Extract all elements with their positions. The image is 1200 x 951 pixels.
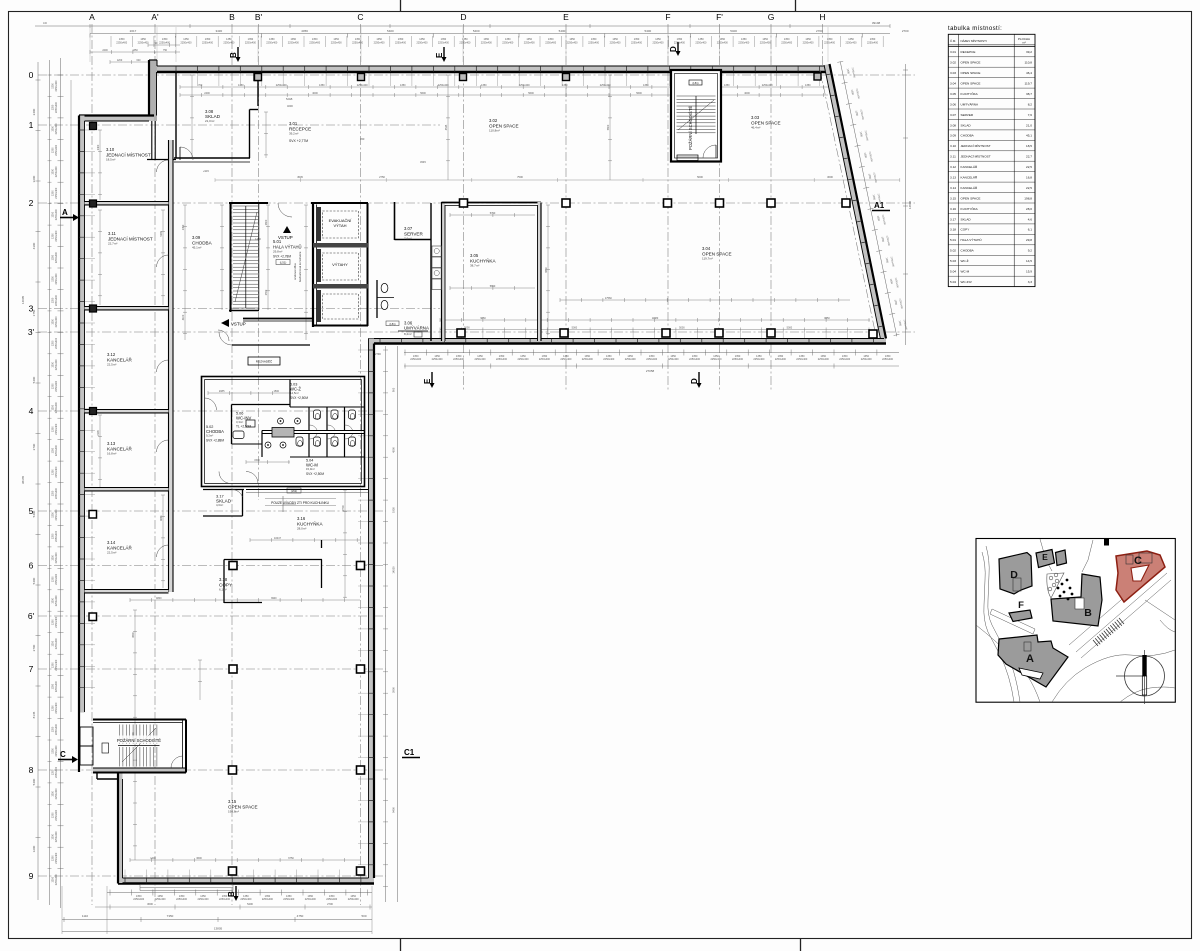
svg-text:5.04: 5.04 <box>950 270 956 274</box>
svg-text:22,5: 22,5 <box>1026 186 1032 190</box>
svg-text:VÝTAHY: VÝTAHY <box>332 262 348 267</box>
svg-text:2250x400: 2250x400 <box>668 358 680 361</box>
svg-text:905: 905 <box>392 387 396 392</box>
svg-text:3.16: 3.16 <box>950 207 956 211</box>
svg-text:22,7m²: 22,7m² <box>108 242 117 246</box>
svg-text:2250x400: 2250x400 <box>198 898 210 901</box>
svg-text:2250x400: 2250x400 <box>588 42 600 45</box>
svg-text:1350: 1350 <box>132 49 138 52</box>
svg-text:2250x400: 2250x400 <box>582 358 594 361</box>
svg-text:1110: 1110 <box>82 914 89 918</box>
svg-text:(L51): (L51) <box>389 322 395 326</box>
svg-text:2250x400: 2250x400 <box>818 358 830 361</box>
svg-text:2250x400: 2250x400 <box>803 42 815 45</box>
svg-text:45,1m²: 45,1m² <box>192 246 201 250</box>
svg-text:2400: 2400 <box>102 49 108 52</box>
svg-text:45,1: 45,1 <box>1026 134 1032 138</box>
svg-text:3.03: 3.03 <box>751 115 760 120</box>
svg-text:2250x400: 2250x400 <box>762 84 774 87</box>
svg-text:3.13: 3.13 <box>107 441 116 446</box>
svg-text:2250x400: 2250x400 <box>55 230 58 242</box>
svg-text:2250x400: 2250x400 <box>374 42 386 45</box>
svg-text:2250x400: 2250x400 <box>55 874 58 886</box>
svg-text:3.13: 3.13 <box>950 176 956 180</box>
svg-text:SERVER: SERVER <box>961 113 974 117</box>
svg-text:RECEPCE: RECEPCE <box>961 50 976 54</box>
svg-text:2250x400: 2250x400 <box>689 358 701 361</box>
svg-text:1350: 1350 <box>52 83 55 89</box>
svg-text:B: B <box>229 12 235 22</box>
svg-text:1350: 1350 <box>52 147 55 153</box>
svg-text:6,1: 6,1 <box>1028 228 1033 232</box>
svg-text:POŽÁRNÍ SCHODIŠTĚ: POŽÁRNÍ SCHODIŠTĚ <box>688 106 693 150</box>
svg-text:2250x400: 2250x400 <box>348 898 360 901</box>
svg-text:3.15: 3.15 <box>228 799 237 804</box>
svg-text:2250x400: 2250x400 <box>55 209 58 221</box>
svg-text:18,5m²: 18,5m² <box>106 158 115 162</box>
svg-text:1350: 1350 <box>805 84 811 87</box>
svg-text:110,8: 110,8 <box>1024 61 1032 65</box>
svg-text:1350: 1350 <box>52 211 55 217</box>
svg-text:4,6m²: 4,6m² <box>216 503 223 507</box>
svg-text:5.02: 5.02 <box>950 249 956 253</box>
svg-text:2250x400: 2250x400 <box>55 702 58 714</box>
svg-text:2250x400: 2250x400 <box>653 42 665 45</box>
svg-text:8,2m²: 8,2m² <box>404 332 412 336</box>
svg-text:2250x400: 2250x400 <box>695 42 707 45</box>
svg-text:1200: 1200 <box>117 59 123 62</box>
svg-text:3.01: 3.01 <box>289 121 298 126</box>
svg-text:2250x400: 2250x400 <box>155 898 167 901</box>
svg-text:3.05: 3.05 <box>950 92 956 96</box>
svg-text:46,4m²: 46,4m² <box>751 126 760 130</box>
svg-text:1350: 1350 <box>52 404 55 410</box>
svg-text:2700: 2700 <box>816 29 823 33</box>
svg-text:1350: 1350 <box>52 447 55 453</box>
svg-text:4056: 4056 <box>301 29 308 33</box>
svg-text:1350: 1350 <box>52 769 55 775</box>
svg-text:2250x400: 2250x400 <box>116 42 128 45</box>
svg-text:3.12: 3.12 <box>107 352 116 357</box>
svg-text:2250x400: 2250x400 <box>55 680 58 692</box>
svg-text:2250x400: 2250x400 <box>867 42 879 45</box>
svg-text:500: 500 <box>361 914 366 918</box>
svg-text:3.06: 3.06 <box>950 102 956 106</box>
svg-text:1350: 1350 <box>52 361 55 367</box>
svg-text:2250x400: 2250x400 <box>202 42 214 45</box>
svg-text:2250x400: 2250x400 <box>55 444 58 456</box>
svg-text:28,0m²: 28,0m² <box>297 527 306 531</box>
svg-text:3.09: 3.09 <box>950 134 956 138</box>
svg-text:2250x400: 2250x400 <box>55 273 58 285</box>
svg-text:2700: 2700 <box>902 29 909 33</box>
svg-text:4500: 4500 <box>392 447 396 453</box>
svg-text:7,6: 7,6 <box>1028 113 1033 117</box>
svg-text:2250x400: 2250x400 <box>55 766 58 778</box>
svg-text:2250x400: 2250x400 <box>625 358 637 361</box>
svg-text:3.03: 3.03 <box>950 71 956 75</box>
svg-text:5000: 5000 <box>787 326 793 329</box>
svg-text:2: 2 <box>29 198 34 208</box>
svg-text:3600: 3600 <box>196 857 202 860</box>
svg-text:1350: 1350 <box>52 469 55 475</box>
svg-text:7: 7 <box>29 664 34 674</box>
svg-text:2250x400: 2250x400 <box>55 723 58 735</box>
svg-text:2250x400: 2250x400 <box>846 42 858 45</box>
svg-text:4545: 4545 <box>420 160 426 164</box>
svg-text:5900: 5900 <box>392 687 396 693</box>
svg-text:2250x400: 2250x400 <box>882 358 894 361</box>
svg-text:H: H <box>819 12 825 22</box>
svg-text:2400: 2400 <box>97 144 100 150</box>
svg-text:2250x400: 2250x400 <box>55 101 58 113</box>
svg-text:2600: 2600 <box>265 219 268 225</box>
svg-text:2250x400: 2250x400 <box>181 42 193 45</box>
svg-text:G: G <box>768 12 775 22</box>
svg-text:WC-INV: WC-INV <box>961 280 973 284</box>
svg-text:2250x400: 2250x400 <box>738 42 750 45</box>
svg-text:1350: 1350 <box>52 640 55 646</box>
svg-text:3.14: 3.14 <box>107 540 116 545</box>
svg-text:29,8: 29,8 <box>1026 238 1032 242</box>
svg-text:F': F' <box>716 12 723 22</box>
svg-text:16,8: 16,8 <box>1026 176 1032 180</box>
svg-text:2250x400: 2250x400 <box>55 187 58 199</box>
svg-text:2250x400: 2250x400 <box>352 42 364 45</box>
svg-text:3600: 3600 <box>132 632 135 638</box>
svg-text:4545: 4545 <box>297 175 303 179</box>
svg-text:1350: 1350 <box>52 104 55 110</box>
svg-text:KUCHYŇKA: KUCHYŇKA <box>961 92 979 96</box>
svg-text:2750: 2750 <box>379 175 385 179</box>
svg-text:1350: 1350 <box>52 619 55 625</box>
svg-text:3600: 3600 <box>827 175 833 179</box>
svg-text:5600: 5600 <box>697 175 703 179</box>
svg-text:14800: 14800 <box>908 200 912 209</box>
svg-text:4,6: 4,6 <box>1028 217 1033 221</box>
svg-text:9400: 9400 <box>392 807 396 813</box>
svg-text:5400: 5400 <box>559 29 566 33</box>
svg-text:SVX +2,50M: SVX +2,50M <box>306 472 324 476</box>
svg-text:SVX +2,77M: SVX +2,77M <box>289 139 308 143</box>
svg-text:2250x400: 2250x400 <box>55 809 58 821</box>
svg-text:3.10: 3.10 <box>106 147 115 152</box>
svg-text:1350: 1350 <box>643 84 649 87</box>
svg-text:tabulka místností:: tabulka místností: <box>948 26 1002 32</box>
svg-text:1350: 1350 <box>52 555 55 561</box>
svg-text:2250x400: 2250x400 <box>55 552 58 564</box>
svg-text:TL +2,50M: TL +2,50M <box>236 425 252 429</box>
svg-text:3.11: 3.11 <box>950 155 956 159</box>
svg-text:1950: 1950 <box>392 507 396 513</box>
svg-text:39198: 39198 <box>872 21 881 25</box>
svg-text:2250x400: 2250x400 <box>55 487 58 499</box>
svg-text:2250x400: 2250x400 <box>839 358 851 361</box>
svg-text:3.09: 3.09 <box>192 235 201 240</box>
svg-text:1350: 1350 <box>52 254 55 260</box>
svg-text:KANCELÁŘ: KANCELÁŘ <box>961 185 978 190</box>
svg-text:A': A' <box>151 12 159 22</box>
svg-text:1350: 1350 <box>52 340 55 346</box>
svg-text:CHODBA: CHODBA <box>961 134 975 138</box>
svg-text:WC-M: WC-M <box>961 270 970 274</box>
svg-text:6750: 6750 <box>288 857 294 860</box>
svg-text:POUZE VÝVODY ZTI PRO KUCHLINKU: POUZE VÝVODY ZTI PRO KUCHLINKU <box>271 501 330 505</box>
svg-text:27058: 27058 <box>646 369 655 373</box>
svg-text:SKLAD: SKLAD <box>961 217 972 221</box>
svg-text:Č.M.: Č.M. <box>950 38 956 43</box>
svg-text:OPEN SPACE: OPEN SPACE <box>961 82 981 86</box>
svg-text:5400: 5400 <box>730 29 737 33</box>
svg-text:5850: 5850 <box>490 285 496 288</box>
svg-text:3.04: 3.04 <box>702 246 711 251</box>
svg-text:4: 4 <box>29 406 34 416</box>
svg-text:0: 0 <box>29 70 34 80</box>
svg-text:9: 9 <box>29 871 34 881</box>
svg-text:1350: 1350 <box>52 748 55 754</box>
svg-text:2250x400: 2250x400 <box>326 898 338 901</box>
svg-text:5400: 5400 <box>387 29 394 33</box>
svg-text:2250x400: 2250x400 <box>55 466 58 478</box>
svg-text:2250x400: 2250x400 <box>55 80 58 92</box>
svg-text:C: C <box>357 12 363 22</box>
svg-text:3.08: 3.08 <box>950 123 956 127</box>
svg-text:1350: 1350 <box>52 876 55 882</box>
svg-text:2250x400: 2250x400 <box>55 595 58 607</box>
svg-text:2250x400: 2250x400 <box>55 402 58 414</box>
svg-text:16,8m²: 16,8m² <box>107 452 116 456</box>
svg-text:1350: 1350 <box>52 726 55 732</box>
svg-text:450: 450 <box>360 137 365 141</box>
svg-text:OPEN SPACE: OPEN SPACE <box>961 61 981 65</box>
svg-text:NÁZEV MÍSTNOSTI: NÁZEV MÍSTNOSTI <box>961 39 987 43</box>
svg-text:2250x400: 2250x400 <box>357 84 369 87</box>
svg-text:5600: 5600 <box>420 92 426 95</box>
svg-text:3.15: 3.15 <box>950 196 956 200</box>
svg-text:C: C <box>1134 555 1142 567</box>
svg-text:6': 6' <box>28 611 35 621</box>
svg-text:(L51): (L51) <box>280 261 287 265</box>
svg-text:2250x400: 2250x400 <box>55 251 58 263</box>
svg-text:2250x400: 2250x400 <box>610 42 622 45</box>
svg-text:3900: 3900 <box>271 597 277 600</box>
svg-text:1350: 1350 <box>52 533 55 539</box>
svg-text:7350: 7350 <box>167 914 174 918</box>
svg-text:1350: 1350 <box>52 662 55 668</box>
svg-text:1350: 1350 <box>52 597 55 603</box>
svg-text:2250x400: 2250x400 <box>781 42 793 45</box>
svg-text:2250x400: 2250x400 <box>55 509 58 521</box>
svg-text:1400: 1400 <box>150 857 156 860</box>
svg-text:2250x400: 2250x400 <box>760 42 772 45</box>
svg-text:22,5: 22,5 <box>1026 165 1032 169</box>
svg-text:KANCELÁŘ: KANCELÁŘ <box>107 544 132 551</box>
svg-text:2250x400: 2250x400 <box>496 358 508 361</box>
svg-text:3600: 3600 <box>147 902 153 906</box>
svg-text:1350: 1350 <box>52 490 55 496</box>
svg-text:3.16: 3.16 <box>297 516 306 521</box>
svg-text:2250x400: 2250x400 <box>717 42 729 45</box>
svg-text:14,5m²: 14,5m² <box>290 391 299 395</box>
svg-text:2250x400: 2250x400 <box>55 831 58 843</box>
svg-text:6,1m²: 6,1m² <box>219 588 227 592</box>
svg-text:1350: 1350 <box>52 126 55 132</box>
svg-text:1350: 1350 <box>52 383 55 389</box>
svg-text:2250x400: 2250x400 <box>276 84 288 87</box>
svg-text:198,8: 198,8 <box>1024 196 1032 200</box>
svg-text:2250x400: 2250x400 <box>55 573 58 585</box>
svg-text:2700: 2700 <box>342 505 345 511</box>
svg-text:1350: 1350 <box>52 512 55 518</box>
svg-text:OPEN SPACE: OPEN SPACE <box>961 71 981 75</box>
svg-text:5750: 5750 <box>490 212 496 215</box>
svg-text:KANCELÁŘ: KANCELÁŘ <box>961 175 978 180</box>
svg-text:3.02: 3.02 <box>950 61 956 65</box>
svg-text:5600: 5600 <box>528 92 534 95</box>
svg-text:2250x400: 2250x400 <box>481 42 493 45</box>
svg-text:OPEN SPACE: OPEN SPACE <box>961 196 981 200</box>
svg-text:WC-Ž: WC-Ž <box>961 258 969 263</box>
svg-text:9,2: 9,2 <box>1028 249 1033 253</box>
svg-text:COPY: COPY <box>961 228 970 232</box>
svg-text:3.05: 3.05 <box>470 253 479 258</box>
svg-text:B': B' <box>255 12 263 22</box>
svg-text:2250x400: 2250x400 <box>240 898 252 901</box>
svg-text:3.02: 3.02 <box>489 118 498 123</box>
svg-text:3.07: 3.07 <box>950 113 956 117</box>
svg-text:SVX +2,78M: SVX +2,78M <box>273 255 291 259</box>
svg-text:13805: 13805 <box>214 927 223 931</box>
svg-text:5000: 5000 <box>572 326 578 329</box>
svg-text:2250x400: 2250x400 <box>138 42 150 45</box>
svg-text:F: F <box>1018 600 1024 611</box>
svg-text:C1: C1 <box>404 748 415 757</box>
svg-text:2250x400: 2250x400 <box>266 42 278 45</box>
svg-text:1350: 1350 <box>52 705 55 711</box>
svg-text:m²: m² <box>1022 40 1025 44</box>
svg-text:10047: 10047 <box>274 537 282 540</box>
svg-text:2250x400: 2250x400 <box>262 898 274 901</box>
svg-text:9,2m²: 9,2m² <box>206 434 213 438</box>
svg-text:5400: 5400 <box>473 29 480 33</box>
svg-text:KANCELÁŘ: KANCELÁŘ <box>107 356 132 363</box>
svg-text:1350: 1350 <box>52 297 55 303</box>
svg-text:1350: 1350 <box>52 683 55 689</box>
svg-text:9850: 9850 <box>480 317 486 320</box>
svg-text:15,9m²: 15,9m² <box>306 467 315 471</box>
svg-text:7500: 7500 <box>517 175 523 179</box>
svg-text:38365: 38365 <box>21 475 25 484</box>
svg-text:1350: 1350 <box>52 233 55 239</box>
svg-text:3,3m²: 3,3m² <box>236 420 243 424</box>
svg-text:4800: 4800 <box>156 597 162 600</box>
svg-text:2250x400: 2250x400 <box>539 358 551 361</box>
svg-text:2250x400: 2250x400 <box>646 358 658 361</box>
svg-text:18,5: 18,5 <box>1026 144 1032 148</box>
svg-text:3430: 3430 <box>215 29 222 33</box>
svg-text:640: 640 <box>137 59 142 62</box>
svg-text:4000: 4000 <box>312 92 318 95</box>
svg-text:1350: 1350 <box>52 276 55 282</box>
svg-text:8,2: 8,2 <box>1028 102 1033 106</box>
svg-text:2250x400: 2250x400 <box>245 42 257 45</box>
svg-text:2700: 2700 <box>327 902 333 906</box>
svg-text:VÝTAH: VÝTAH <box>333 223 346 228</box>
svg-text:3.10: 3.10 <box>950 144 956 148</box>
svg-text:1500: 1500 <box>254 459 260 462</box>
svg-text:5000: 5000 <box>679 326 685 329</box>
svg-text:1450: 1450 <box>182 224 185 230</box>
svg-text:5600: 5600 <box>607 124 610 130</box>
svg-text:46,4: 46,4 <box>1026 71 1032 75</box>
svg-text:2250x400: 2250x400 <box>305 898 317 901</box>
svg-text:2250x400: 2250x400 <box>55 745 58 757</box>
svg-text:2250x400: 2250x400 <box>796 358 808 361</box>
svg-text:SVX +2,88M: SVX +2,88M <box>206 439 224 443</box>
svg-text:5400: 5400 <box>644 29 651 33</box>
svg-text:2250x400: 2250x400 <box>219 898 231 901</box>
svg-text:1350: 1350 <box>319 84 325 87</box>
svg-text:2250x400: 2250x400 <box>288 42 300 45</box>
svg-text:(L51): (L51) <box>692 81 698 85</box>
svg-text:2250x400: 2250x400 <box>417 42 429 45</box>
svg-text:2400: 2400 <box>32 108 36 115</box>
svg-text:2250x400: 2250x400 <box>283 898 295 901</box>
svg-text:2250x400: 2250x400 <box>55 144 58 156</box>
svg-text:9850: 9850 <box>545 267 548 273</box>
svg-text:3.04: 3.04 <box>950 82 956 86</box>
svg-text:2250x400: 2250x400 <box>55 788 58 800</box>
svg-text:A1: A1 <box>874 201 885 210</box>
svg-text:4300: 4300 <box>32 242 36 249</box>
svg-text:1350: 1350 <box>52 791 55 797</box>
svg-text:110,8m²: 110,8m² <box>489 129 500 133</box>
svg-text:E: E <box>563 12 569 22</box>
svg-text:2250x400: 2250x400 <box>55 852 58 864</box>
svg-text:ROZVADĚČ: ROZVADĚČ <box>256 359 273 364</box>
svg-text:1350: 1350 <box>724 84 730 87</box>
svg-text:2250x400: 2250x400 <box>55 638 58 650</box>
svg-text:D: D <box>1010 569 1018 581</box>
svg-text:KUCHYŇKA: KUCHYŇKA <box>961 207 979 211</box>
svg-text:3200: 3200 <box>32 175 36 182</box>
svg-text:1350: 1350 <box>52 812 55 818</box>
svg-text:22,5m²: 22,5m² <box>107 363 116 367</box>
svg-text:198,8m²: 198,8m² <box>228 810 239 814</box>
svg-text:2250x400: 2250x400 <box>331 42 343 45</box>
svg-text:1350: 1350 <box>52 168 55 174</box>
svg-text:1350: 1350 <box>52 190 55 196</box>
svg-text:SVX +2,50M: SVX +2,50M <box>290 396 308 400</box>
svg-text:1350: 1350 <box>400 84 406 87</box>
svg-text:3.14: 3.14 <box>950 186 956 190</box>
svg-text:4100: 4100 <box>182 314 185 320</box>
svg-text:2250x400: 2250x400 <box>395 42 407 45</box>
svg-text:2250x400: 2250x400 <box>519 84 531 87</box>
svg-text:38,7m²: 38,7m² <box>470 264 479 268</box>
svg-text:2250x400: 2250x400 <box>600 84 612 87</box>
svg-text:A: A <box>89 12 95 22</box>
svg-text:52AB: 52AB <box>286 97 293 101</box>
svg-text:2017: 2017 <box>130 29 137 33</box>
svg-text:bezbariérová konstrukce: bezbariérová konstrukce <box>298 251 302 282</box>
svg-text:ocelová síťka: ocelová síťka <box>293 263 297 280</box>
svg-text:11580: 11580 <box>652 317 659 320</box>
svg-text:HALA VÝTAHŮ: HALA VÝTAHŮ <box>961 237 982 242</box>
svg-text:A: A <box>62 208 68 217</box>
svg-text:JEDNACÍ MÍSTNOST: JEDNACÍ MÍSTNOST <box>961 144 991 148</box>
svg-text:5.04: 5.04 <box>950 280 956 284</box>
